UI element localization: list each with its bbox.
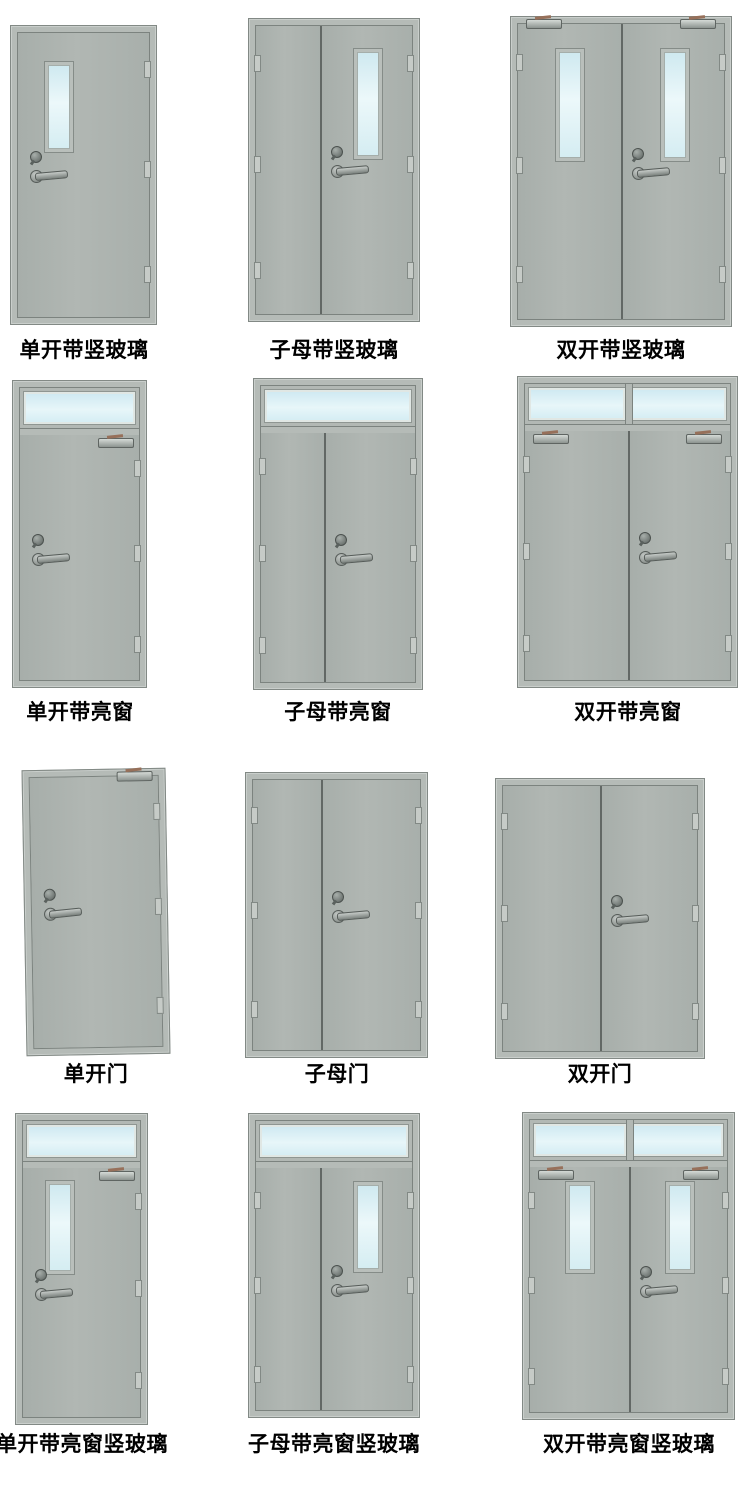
door-leaf (261, 433, 324, 682)
fire-door-illustration (248, 1113, 420, 1418)
hinge (254, 1192, 261, 1209)
hinge (135, 1193, 142, 1210)
door-leaves (253, 780, 420, 1050)
vision-glass-pane (559, 52, 581, 158)
hinge (251, 1001, 258, 1018)
hinge (254, 1277, 261, 1294)
door-leaf (256, 1168, 320, 1410)
vision-glass (565, 1181, 595, 1274)
lock-cylinder (331, 1265, 343, 1277)
fire-door-illustration (12, 380, 147, 688)
hinge (692, 1003, 699, 1020)
vision-glass (353, 48, 383, 160)
hinge (134, 460, 141, 477)
hinge (516, 157, 523, 174)
transom-window (23, 1121, 140, 1161)
door-leaf-active (320, 1168, 412, 1410)
transom-glass (630, 387, 728, 421)
hinge (722, 1192, 729, 1209)
door-leaves (525, 431, 730, 680)
door-interior (260, 385, 416, 683)
hinge (501, 1003, 508, 1020)
hinge (254, 156, 261, 173)
fire-door-illustration (15, 1113, 148, 1425)
door-interior (502, 785, 698, 1052)
lock-cylinder (332, 891, 344, 903)
hinge (254, 55, 261, 72)
vision-glass-pane (669, 1185, 691, 1270)
door-type-label: 单开带亮窗竖玻璃 (0, 1428, 212, 1458)
fire-door-illustration (517, 376, 738, 688)
hinge (407, 1192, 414, 1209)
door-type-label: 子母门 (207, 1058, 467, 1088)
hinge (523, 543, 530, 560)
hinge (153, 803, 160, 820)
door-leaf-active (324, 433, 415, 682)
door-frame (522, 1112, 735, 1420)
door-leaves (20, 435, 139, 680)
door-leaf (530, 1167, 629, 1412)
hinge (407, 156, 414, 173)
lock-cylinder (331, 146, 343, 158)
door-interior (252, 779, 421, 1051)
vision-glass (660, 48, 690, 162)
hinge (410, 458, 417, 475)
door-leaves (503, 786, 697, 1051)
lock-cylinder (611, 895, 623, 907)
lock-cylinder (30, 151, 42, 163)
door-leaf-active (320, 26, 412, 314)
vision-glass-pane (48, 65, 70, 149)
lock-cylinder (640, 1266, 652, 1278)
door-interior (22, 1120, 141, 1418)
door-leaf (256, 26, 320, 314)
hinge (135, 1280, 142, 1297)
door-type-label: 单开门 (0, 1058, 226, 1088)
hinge (501, 905, 508, 922)
door-leaves (256, 26, 412, 314)
transom-glass (26, 1124, 137, 1158)
lock-cylinder (335, 534, 347, 546)
hinge (134, 636, 141, 653)
hinge (719, 157, 726, 174)
hinge (155, 898, 162, 915)
hinge (692, 905, 699, 922)
vision-glass-pane (569, 1185, 591, 1270)
transom-glass (528, 387, 626, 421)
lever-handle (35, 170, 69, 181)
door-leaf (20, 435, 139, 680)
door-type-label: 单开带亮窗 (0, 696, 210, 726)
door-closer (533, 434, 569, 444)
vision-glass-pane (49, 1184, 71, 1271)
door-leaves (530, 1167, 727, 1412)
door-leaf (18, 33, 149, 317)
hinge (251, 902, 258, 919)
vision-glass (665, 1181, 695, 1274)
fire-door-illustration (245, 772, 428, 1058)
door-frame (10, 25, 157, 325)
transom-glass (259, 1124, 409, 1158)
door-frame (248, 1113, 420, 1418)
hinge (516, 266, 523, 283)
door-leaves (18, 33, 149, 317)
hinge (407, 262, 414, 279)
fire-door-types-image: 单开带竖玻璃 子母带竖玻璃 双开带竖玻璃 单开带亮窗 子母带亮窗 双开带亮窗 单… (0, 0, 750, 1503)
fire-door-illustration (495, 778, 705, 1059)
door-closer (686, 434, 722, 444)
lever-handle (645, 1285, 679, 1296)
door-closer (538, 1170, 574, 1180)
hinge (251, 807, 258, 824)
hinge (725, 635, 732, 652)
lever-handle (644, 551, 678, 562)
hinge (722, 1368, 729, 1385)
door-frame (517, 376, 738, 688)
fire-door-illustration (522, 1112, 735, 1420)
hinge (259, 545, 266, 562)
lever-handle (616, 914, 650, 925)
lock-cylinder (639, 532, 651, 544)
door-leaf (253, 780, 321, 1050)
lever-handle (340, 553, 374, 564)
door-leaf-active (600, 786, 697, 1051)
hinge (719, 54, 726, 71)
transom-window (20, 388, 139, 428)
transom-mullion (626, 1120, 634, 1160)
hinge (528, 1368, 535, 1385)
hinge (523, 456, 530, 473)
lock-cylinder (35, 1269, 47, 1281)
lever-handle (637, 167, 671, 178)
door-leaf-active (629, 1167, 727, 1412)
hinge (410, 545, 417, 562)
door-frame (22, 768, 171, 1056)
door-leaf (525, 431, 628, 680)
door-type-label: 双开带亮窗 (498, 696, 750, 726)
lever-handle (337, 910, 371, 921)
fire-door-illustration (253, 378, 423, 690)
door-closer (99, 1171, 135, 1181)
door-frame (495, 778, 705, 1059)
hinge (254, 1366, 261, 1383)
door-leaf (23, 1168, 140, 1417)
door-type-label: 双开带竖玻璃 (491, 334, 750, 364)
door-leaf-active (621, 24, 724, 319)
hinge (501, 813, 508, 830)
hinge (528, 1192, 535, 1209)
vision-glass (45, 1180, 75, 1275)
door-leaf (518, 24, 621, 319)
lever-handle (37, 553, 71, 564)
hinge (144, 61, 151, 78)
door-type-label: 子母带亮窗竖玻璃 (204, 1428, 464, 1458)
lever-handle (336, 165, 370, 176)
door-leaves (30, 776, 163, 1048)
vision-glass-pane (664, 52, 686, 158)
hinge (407, 55, 414, 72)
door-interior (17, 32, 150, 318)
lock-cylinder (632, 148, 644, 160)
door-closer (98, 438, 134, 448)
hinge (254, 262, 261, 279)
fire-door-illustration (510, 16, 732, 327)
transom-glass (533, 1123, 627, 1157)
door-leaves (518, 24, 724, 319)
transom-window (256, 1121, 412, 1161)
door-closer (683, 1170, 719, 1180)
vision-glass (353, 1181, 383, 1273)
door-closer (680, 19, 716, 29)
door-leaves (261, 433, 415, 682)
hinge (692, 813, 699, 830)
door-closer (526, 19, 562, 29)
door-interior (529, 1119, 728, 1413)
vision-glass (44, 61, 74, 153)
door-closer (117, 771, 153, 782)
vision-glass (555, 48, 585, 162)
door-frame (245, 772, 428, 1058)
door-type-label: 子母带竖玻璃 (204, 334, 464, 364)
door-interior (255, 1120, 413, 1411)
lock-cylinder (44, 889, 56, 901)
transom-window (525, 384, 730, 424)
hinge (407, 1277, 414, 1294)
fire-door-illustration (248, 18, 420, 322)
hinge (134, 545, 141, 562)
lock-cylinder (32, 534, 44, 546)
hinge (407, 1366, 414, 1383)
hinge (516, 54, 523, 71)
hinge (523, 635, 530, 652)
transom-glass (23, 391, 136, 425)
hinge (415, 1001, 422, 1018)
door-leaf-active (628, 431, 730, 680)
hinge (144, 266, 151, 283)
transom-mullion (625, 384, 633, 424)
hinge (144, 161, 151, 178)
fire-door-illustration (22, 768, 171, 1056)
vision-glass-pane (357, 52, 379, 156)
hinge (725, 543, 732, 560)
transom-window (530, 1120, 727, 1160)
door-frame (510, 16, 732, 327)
hinge (259, 637, 266, 654)
transom-glass (264, 389, 412, 423)
door-leaf-active (321, 780, 420, 1050)
transom-window (261, 386, 415, 426)
door-leaf (503, 786, 600, 1051)
door-leaf (30, 776, 163, 1048)
door-leaves (23, 1168, 140, 1417)
hinge (135, 1372, 142, 1389)
hinge (528, 1277, 535, 1294)
lever-handle (40, 1288, 74, 1299)
door-frame (15, 1113, 148, 1425)
lever-handle (336, 1284, 370, 1295)
hinge (415, 807, 422, 824)
door-interior (29, 775, 164, 1049)
door-type-label: 双开门 (470, 1058, 730, 1088)
door-interior (255, 25, 413, 315)
hinge (719, 266, 726, 283)
door-interior (524, 383, 731, 681)
door-leaves (256, 1168, 412, 1410)
hinge (722, 1277, 729, 1294)
fire-door-illustration (10, 25, 157, 325)
hinge (410, 637, 417, 654)
hinge (415, 902, 422, 919)
door-type-label: 子母带亮窗 (208, 696, 468, 726)
hinge (156, 997, 163, 1014)
door-type-label: 双开带亮窗竖玻璃 (499, 1428, 750, 1458)
hinge (725, 456, 732, 473)
door-interior (19, 387, 140, 681)
transom-glass (631, 1123, 725, 1157)
door-interior (517, 23, 725, 320)
hinge (259, 458, 266, 475)
door-frame (12, 380, 147, 688)
door-frame (253, 378, 423, 690)
door-type-label: 单开带竖玻璃 (0, 334, 214, 364)
door-frame (248, 18, 420, 322)
vision-glass-pane (357, 1185, 379, 1269)
